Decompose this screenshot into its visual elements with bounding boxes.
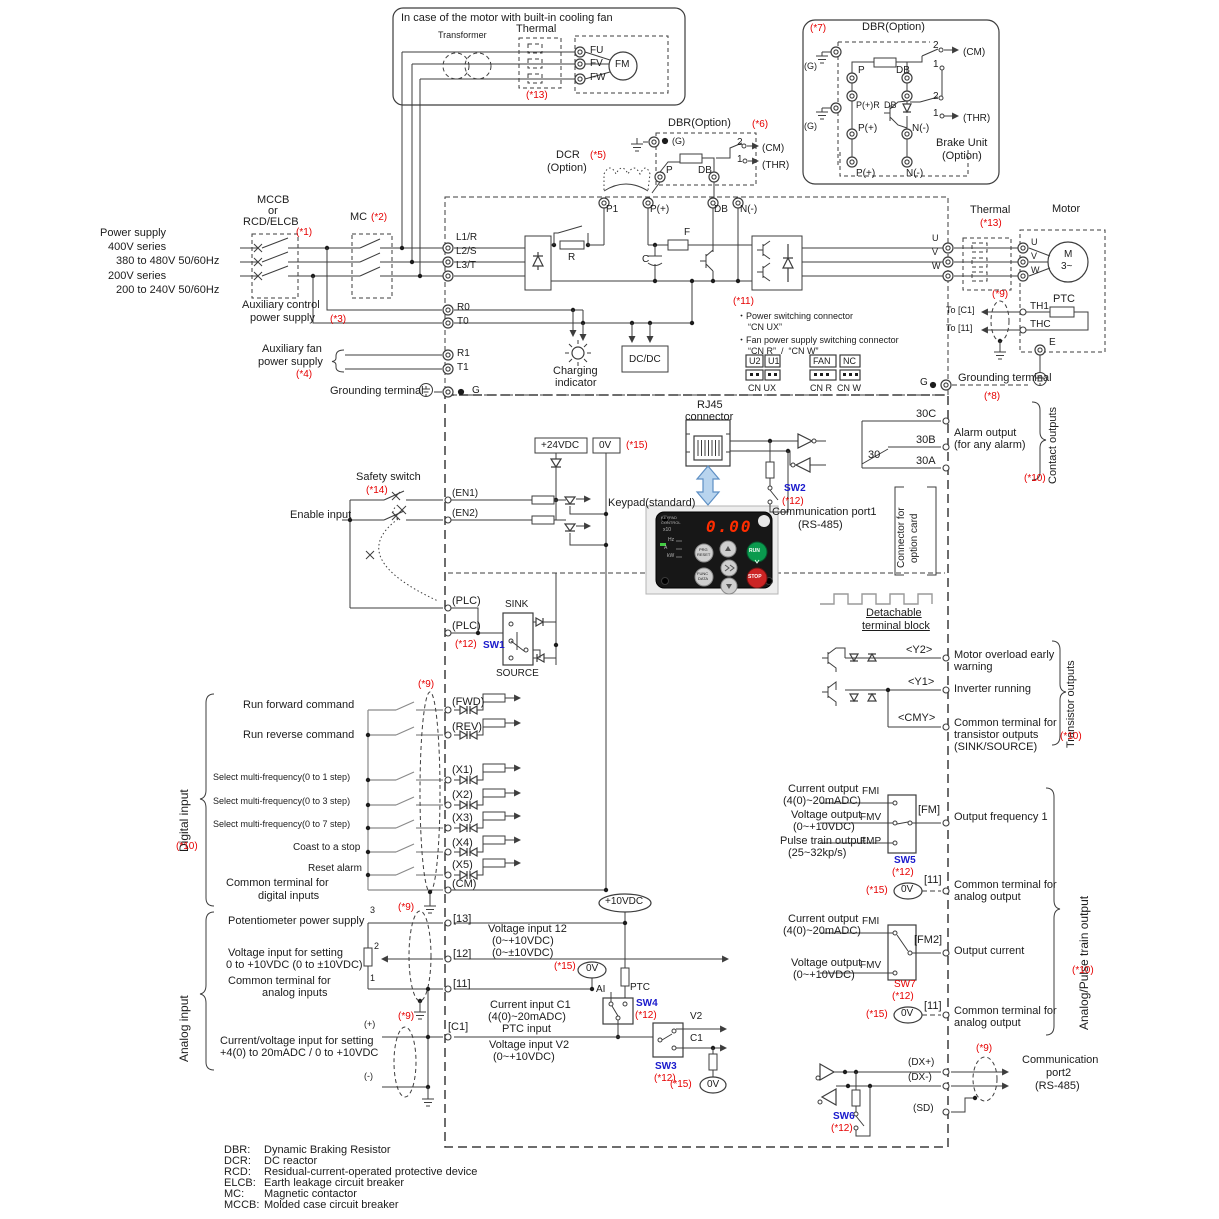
dbr-option-mid: [631, 133, 758, 198]
main-power-circuit: [454, 198, 943, 372]
alarm-relay: [862, 418, 949, 471]
analog-input-circuit: [364, 894, 728, 1106]
dcr-option: [604, 168, 650, 191]
plc-sink-source: [445, 573, 558, 665]
detachable-terminal-block: [820, 594, 932, 604]
option-card-bracket: [895, 487, 936, 575]
thermal-motor: [930, 230, 1105, 390]
comm-port2-circuit: [816, 1057, 1008, 1136]
wiring-diagram: In case of the motor with built-in cooli…: [0, 0, 1219, 1219]
comm-port1-circuit: [730, 434, 826, 512]
cn-connectors: [746, 355, 860, 380]
fm-output-circuit: [820, 795, 949, 1023]
diagram-graphics: [0, 0, 1219, 1219]
digital-input-circuit: [366, 692, 608, 913]
rj45-connector: [686, 420, 730, 466]
enable-safety-circuit: [342, 438, 620, 890]
keypad-link-arrow: [697, 466, 719, 505]
power-input-circuit: [240, 234, 464, 397]
dbr-brake-unit-box: [803, 20, 999, 184]
transistor-output-circuit: [822, 648, 949, 730]
keypad-device: [646, 506, 778, 594]
inverter-enclosure: [445, 197, 948, 1147]
